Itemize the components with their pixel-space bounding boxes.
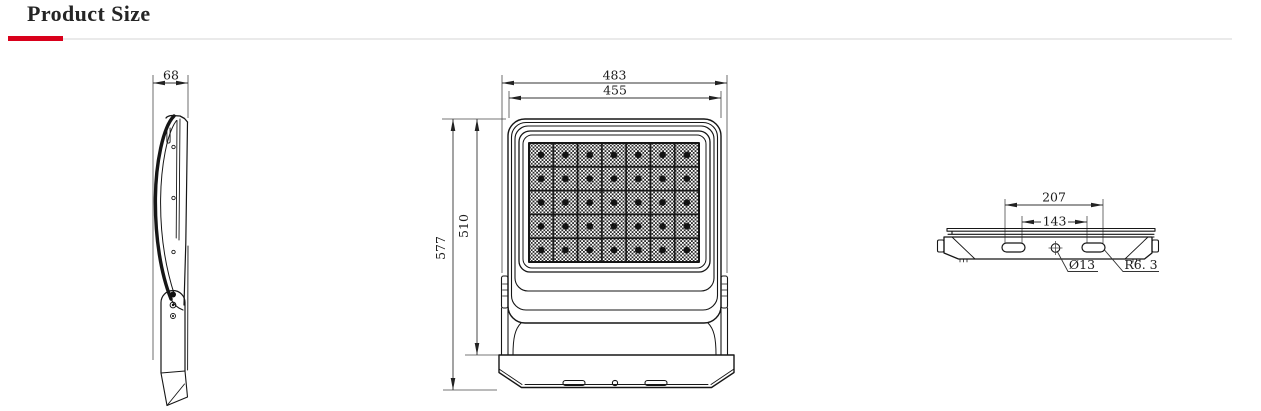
side-screw xyxy=(172,196,175,199)
dim-label-body-height: 510 xyxy=(456,214,471,238)
end-tab-left xyxy=(938,240,945,252)
dim-label-lens-width: 455 xyxy=(603,83,627,98)
side-mounting-bracket xyxy=(161,291,188,406)
top-view-drawing: 207 143 Ø13 R6. 3 xyxy=(930,185,1180,285)
heatsink-back-curve xyxy=(155,116,174,299)
top-outline xyxy=(944,237,1152,259)
front-view-drawing: 483 455 577 510 xyxy=(435,58,755,410)
product-size-section: Product Size 68 xyxy=(0,0,1261,411)
divider-line xyxy=(8,38,1232,41)
bracket-foot xyxy=(161,371,188,406)
bracket-screw xyxy=(170,292,176,298)
dim-body-height-510: 510 xyxy=(456,119,499,355)
side-profile xyxy=(155,116,188,371)
pivot-tab-left xyxy=(502,276,509,308)
end-tab-right xyxy=(1152,240,1159,252)
leader-hole-diameter: Ø13 xyxy=(1057,251,1098,272)
led-grid xyxy=(529,143,699,262)
page-title: Product Size xyxy=(27,1,151,27)
side-view-drawing: 68 xyxy=(140,58,252,410)
mount-slot-right xyxy=(1082,243,1105,252)
bracket-base xyxy=(499,355,734,388)
lens-front-edge xyxy=(184,122,188,305)
dim-label-slot-span-inner: 143 xyxy=(1043,214,1067,229)
pivot-tab-right xyxy=(721,276,728,308)
dim-overall-height-577: 577 xyxy=(433,119,506,390)
dim-label-depth: 68 xyxy=(163,68,179,83)
title-divider xyxy=(8,36,1232,42)
dim-lens-width-455: 455 xyxy=(509,83,721,119)
divider-accent-bar xyxy=(8,36,63,41)
mount-slot-left xyxy=(1002,243,1025,252)
dim-label-outer-width: 483 xyxy=(603,68,627,83)
dim-label-slot-span-outer: 207 xyxy=(1042,190,1066,205)
side-screw xyxy=(172,145,175,148)
yoke-arms xyxy=(502,276,728,355)
dim-label-slot-radius: R6. 3 xyxy=(1124,257,1157,272)
dim-label-overall-height: 577 xyxy=(433,236,448,260)
side-screw xyxy=(172,250,175,253)
dim-label-hole-diameter: Ø13 xyxy=(1069,257,1095,272)
